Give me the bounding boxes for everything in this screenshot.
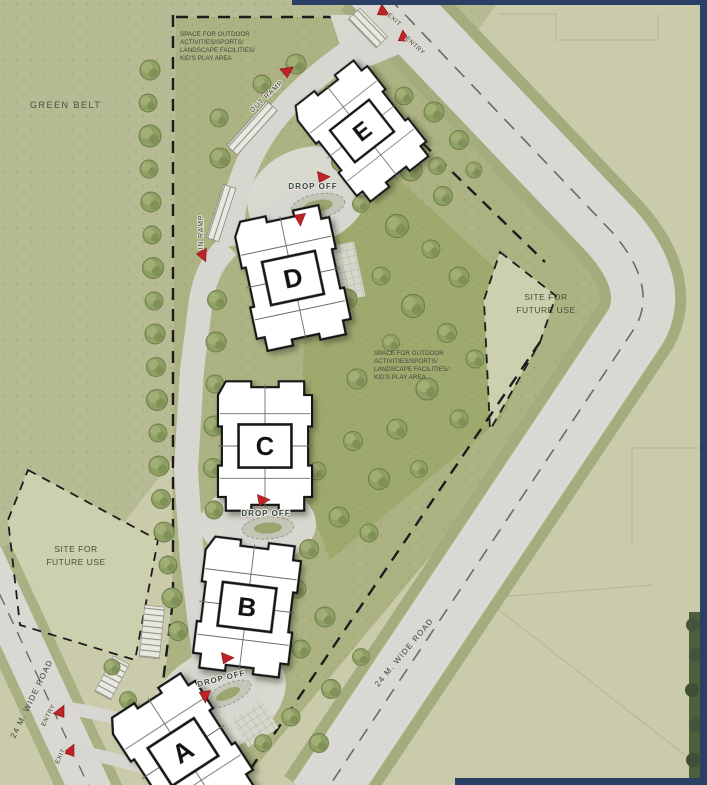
site-plan-map: E D C B A GREEN BELT SPACE FOR OUTDOOR A… (0, 0, 707, 785)
svg-text:SPACE FOR OUTDOOR: SPACE FOR OUTDOOR (374, 350, 444, 357)
svg-text:ACTIVITIES/SPORTS/: ACTIVITIES/SPORTS/ (180, 39, 244, 46)
building-b-label: B (236, 591, 258, 623)
drop-off-label-1: DROP OFF (288, 182, 337, 191)
svg-text:SITE FOR: SITE FOR (524, 292, 567, 302)
svg-text:SITE FOR: SITE FOR (54, 544, 97, 554)
svg-text:KID'S PLAY AREA: KID'S PLAY AREA (374, 374, 427, 381)
drop-off-label-2: DROP OFF (241, 509, 290, 518)
svg-text:KID'S PLAY AREA: KID'S PLAY AREA (180, 55, 233, 62)
green-belt-label: GREEN BELT (30, 100, 101, 110)
site-plan-canvas: E D C B A GREEN BELT SPACE FOR OUTDOOR A… (0, 0, 707, 785)
building-b: B (191, 536, 302, 679)
svg-text:SPACE FOR OUTDOOR: SPACE FOR OUTDOOR (180, 31, 250, 38)
building-c-label: C (256, 433, 274, 461)
in-ramp-label: IN RAMP (198, 215, 205, 250)
building-c: C (218, 381, 312, 510)
svg-text:FUTURE USE: FUTURE USE (46, 557, 105, 567)
svg-text:LANDSCAPE FACILITIES/: LANDSCAPE FACILITIES/ (180, 47, 255, 54)
svg-text:ACTIVITIES/SPORTS/: ACTIVITIES/SPORTS/ (374, 358, 438, 365)
svg-text:FUTURE USE: FUTURE USE (516, 305, 575, 315)
svg-text:LANDSCAPE FACILITIES/: LANDSCAPE FACILITIES/ (374, 366, 449, 373)
